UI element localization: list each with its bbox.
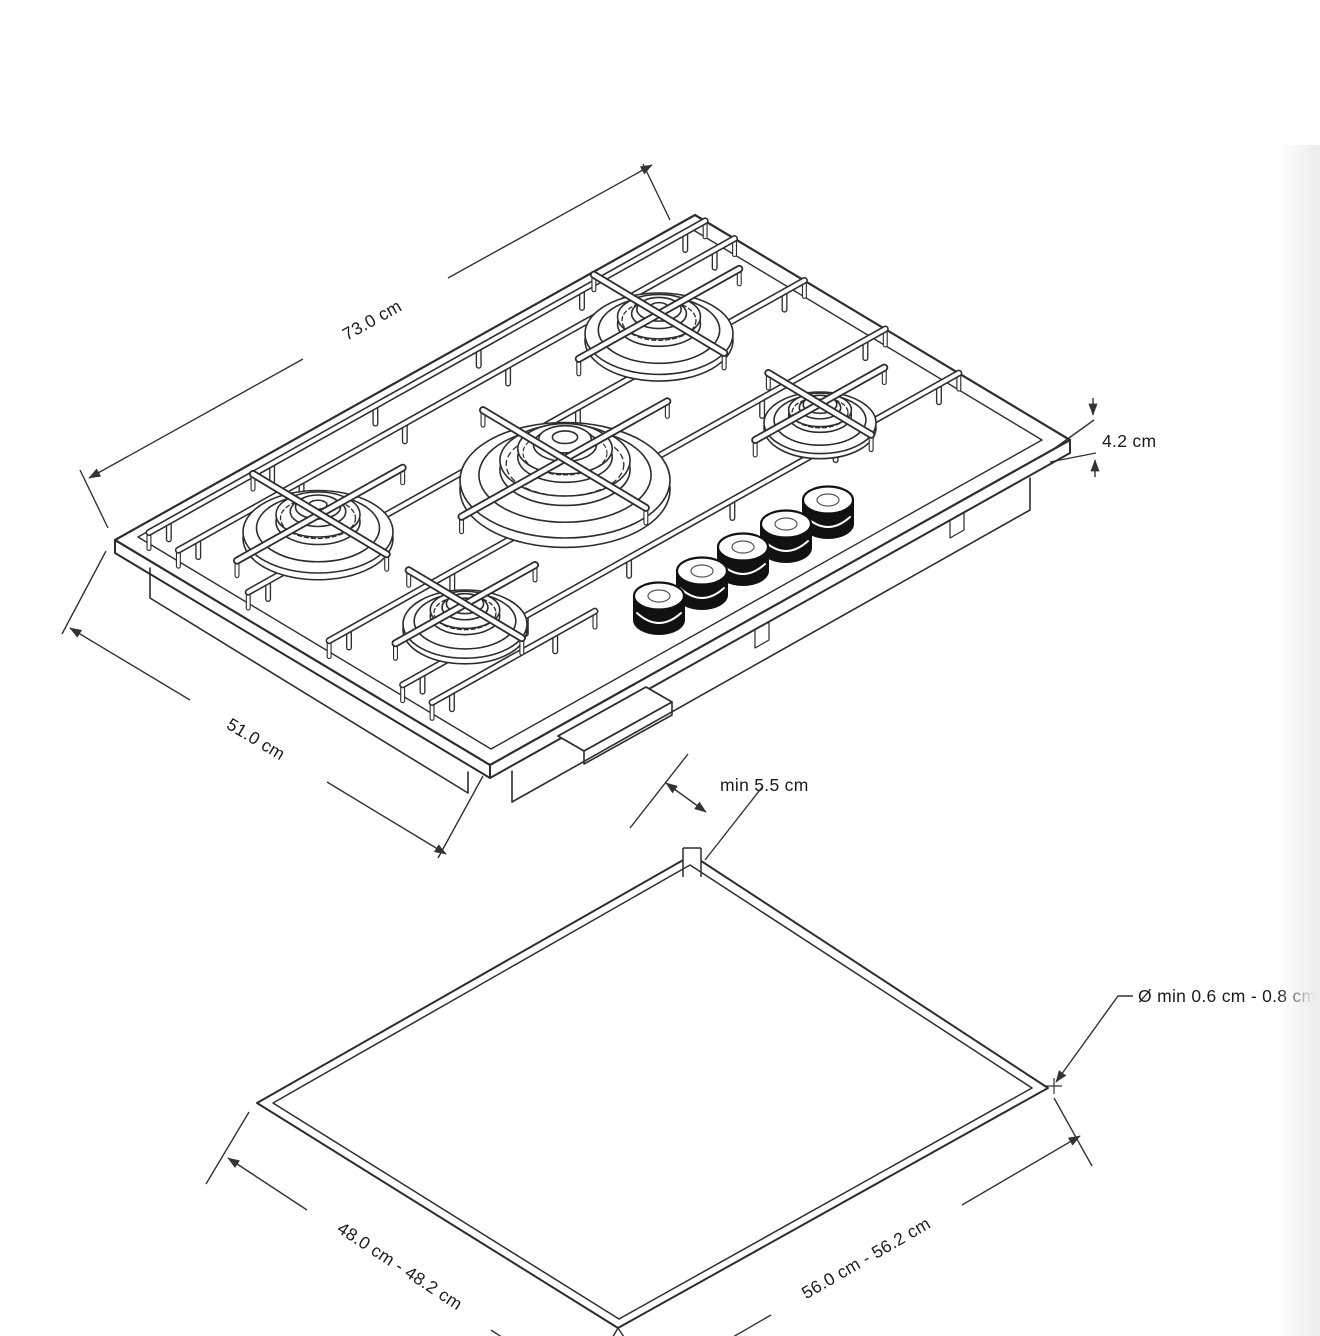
hole-diameter-label: Ø min 0.6 cm - 0.8 cm bbox=[1138, 986, 1316, 1006]
cooktop-installation-diagram: 73.0 cm 51.0 cm 4.2 cm bbox=[0, 0, 1320, 1336]
clearance-dimension: min 5.5 cm bbox=[630, 754, 809, 860]
width-dimension-label: 73.0 cm bbox=[339, 296, 405, 345]
cutout-width-label: 56.0 cm - 56.2 cm bbox=[798, 1213, 934, 1303]
isometric-cooktop bbox=[115, 215, 1070, 802]
cutout-drawing bbox=[257, 848, 1048, 1336]
height-dimension-label: 4.2 cm bbox=[1102, 431, 1156, 451]
control-knob bbox=[633, 583, 685, 636]
diagram-canvas: 73.0 cm 51.0 cm 4.2 cm bbox=[0, 0, 1320, 1336]
cutout-depth-label: 48.0 cm - 48.2 cm bbox=[334, 1218, 466, 1314]
clearance-dimension-label: min 5.5 cm bbox=[720, 775, 809, 795]
hole-diameter-dimension: Ø min 0.6 cm - 0.8 cm bbox=[1046, 986, 1316, 1094]
depth-dimension-label: 51.0 cm bbox=[223, 714, 288, 764]
